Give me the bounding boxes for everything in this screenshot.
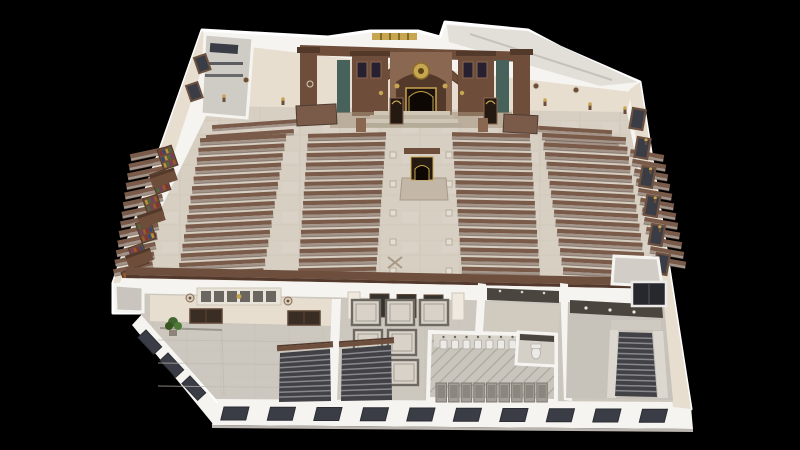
coffer-cell <box>266 291 276 302</box>
recessed-light <box>584 306 587 309</box>
recessed-light <box>632 310 635 313</box>
toilet-stall <box>499 383 510 402</box>
facade-window <box>314 408 342 421</box>
recessed-light <box>543 292 546 295</box>
candelabra <box>460 91 464 95</box>
tile-medallion <box>386 300 414 325</box>
candelabra <box>379 91 383 95</box>
restroom <box>428 332 556 402</box>
vestibule <box>483 288 560 332</box>
marble-panel-right <box>496 60 509 113</box>
facade-window <box>453 408 481 421</box>
box-pew <box>503 114 538 134</box>
facade-window <box>639 409 667 422</box>
mezzanine-rail <box>205 74 243 77</box>
window <box>649 224 665 246</box>
floorplan-3d-render <box>0 0 800 450</box>
column-pedestal <box>446 152 452 158</box>
stair-tread <box>616 380 656 381</box>
box-pew <box>296 104 337 126</box>
side-tower-left <box>350 51 390 116</box>
skylight-strip <box>372 33 417 40</box>
facade-window <box>267 407 295 420</box>
column-pedestal <box>390 181 396 187</box>
corner-room-left <box>115 285 143 312</box>
stair-tread <box>618 348 653 349</box>
marble-panel-left <box>337 60 350 113</box>
facade-window <box>407 408 435 421</box>
stair-tread <box>617 364 655 365</box>
column-pedestal <box>390 239 396 245</box>
rosette-icon <box>573 87 579 93</box>
toilet-stall <box>474 383 485 402</box>
window <box>639 166 655 188</box>
pew-bank-left-center <box>298 132 386 276</box>
stair-tread <box>617 359 654 360</box>
window <box>634 137 650 159</box>
column-pedestal <box>390 210 396 216</box>
stair-tread <box>619 337 653 338</box>
coffer-cell <box>214 291 224 302</box>
column-pedestal <box>446 210 452 216</box>
sconce-icon <box>623 106 627 114</box>
toilet-stall <box>512 383 522 402</box>
sconce-icon <box>543 98 547 106</box>
tile-medallion <box>352 300 380 325</box>
column-pedestal <box>390 152 396 158</box>
menorah-left <box>395 84 400 89</box>
facade-window <box>221 407 249 420</box>
coffer-cell <box>201 291 211 302</box>
coffer-cell <box>227 291 237 302</box>
column-pedestal <box>446 239 452 245</box>
facade-window <box>360 408 388 421</box>
sconce-icon <box>281 97 285 105</box>
pew-bank-right-center <box>452 132 540 276</box>
porch-pilaster <box>452 293 464 320</box>
bimah-platform <box>400 178 448 200</box>
stair-tread <box>618 353 654 354</box>
toilet-stall <box>486 383 497 402</box>
rosette-icon <box>307 81 313 87</box>
chair <box>356 118 366 132</box>
column-pedestal <box>446 268 452 274</box>
chair <box>478 118 488 132</box>
rosette-icon <box>243 77 249 83</box>
facade-window <box>593 409 621 422</box>
render-canvas <box>0 0 800 450</box>
stair-tread <box>615 391 656 392</box>
double-door <box>288 311 320 325</box>
recessed-light <box>499 290 502 293</box>
rosette-icon <box>533 83 539 89</box>
toilet-stall <box>537 383 548 402</box>
toilet-stall <box>436 383 447 402</box>
stair-tread <box>617 369 655 370</box>
stair-landing <box>611 320 661 330</box>
pilaster-right <box>513 52 530 118</box>
toilet-stall <box>461 383 472 402</box>
recessed-light <box>608 308 611 311</box>
sconce-icon <box>588 102 592 110</box>
coffer-gold-center <box>237 294 242 299</box>
tile-medallion <box>390 360 418 385</box>
window <box>644 195 660 217</box>
toilet-stall <box>524 383 535 402</box>
recessed-light <box>521 291 524 294</box>
mezzanine-rail <box>207 62 243 65</box>
stair-tread <box>618 343 653 344</box>
stair-tread <box>616 385 657 386</box>
wc-room <box>516 332 556 366</box>
sconce-icon <box>222 94 226 102</box>
facade-front <box>212 403 693 432</box>
double-door <box>190 309 222 323</box>
tile-medallion <box>420 300 448 325</box>
window <box>630 108 646 130</box>
mezzanine-room <box>201 34 253 118</box>
bimah-canopy <box>404 148 440 154</box>
facade-window <box>546 409 574 422</box>
coffer-cell <box>253 291 263 302</box>
menorah-right <box>443 84 448 89</box>
stair-tread <box>616 375 655 376</box>
toilet-stall <box>449 383 460 402</box>
facade-window <box>500 409 528 422</box>
toilet-stalls <box>436 383 547 402</box>
main-stairwell <box>615 332 657 397</box>
